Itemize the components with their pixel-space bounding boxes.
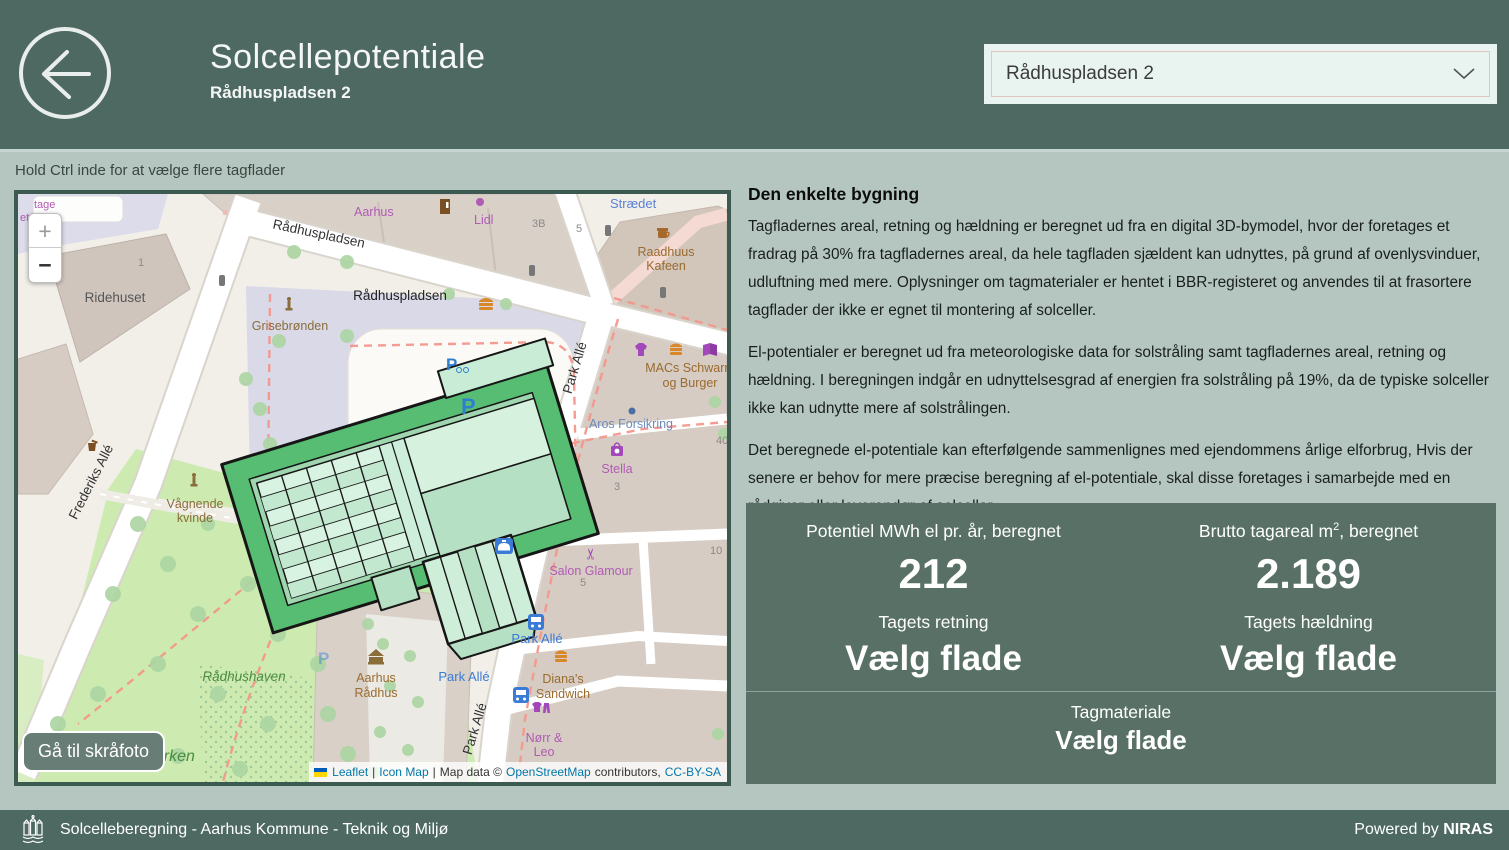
svg-text:Kafeen: Kafeen (646, 259, 686, 273)
svg-text:Salon Glamour: Salon Glamour (549, 564, 632, 578)
attribution-sep: | (372, 765, 375, 779)
stat-slope-label: Tagets hældning (1121, 610, 1496, 633)
powered-by: Powered by NIRAS (1354, 821, 1493, 839)
header: Solcellepotentiale Rådhuspladsen 2 Rådhu… (0, 0, 1509, 152)
icon-map-link[interactable]: Icon Map (379, 765, 428, 779)
attribution-sep: | (433, 765, 436, 779)
zoom-out-button[interactable]: − (29, 248, 61, 282)
leaflet-link[interactable]: Leaflet (332, 765, 368, 779)
svg-text:Rådhus: Rådhus (354, 686, 397, 700)
svg-text:Park Allé: Park Allé (438, 669, 489, 684)
burger-icon (479, 298, 493, 310)
map-canvas[interactable]: ✂ (18, 194, 727, 782)
svg-text:Nørr &: Nørr & (526, 731, 563, 745)
info-paragraph-2: El-potentialer er beregnet ud fra meteor… (748, 339, 1496, 423)
bus-icon (528, 614, 544, 630)
svg-text:5: 5 (580, 577, 586, 589)
skrafoto-button[interactable]: Gå til skråfoto (22, 731, 165, 772)
svg-text:Aarhus: Aarhus (354, 205, 394, 219)
svg-text:10: 10 (710, 545, 722, 557)
footer-app-title: Solcelleberegning - Aarhus Kommune - Tek… (60, 821, 448, 839)
svg-text:5: 5 (576, 223, 582, 235)
chevron-down-icon (1453, 68, 1475, 80)
info-heading: Den enkelte bygning (748, 184, 1496, 205)
svg-text:Strædet: Strædet (610, 196, 657, 211)
burger-icon (555, 651, 567, 663)
map[interactable]: ✂ (14, 190, 731, 786)
svg-text:Rådhuspladsen: Rådhuspladsen (353, 288, 447, 303)
map-attribution: Leaflet | Icon Map | Map data © OpenStre… (309, 762, 727, 782)
stat-direction-label: Tagets retning (746, 610, 1121, 633)
address-dropdown-value: Rådhuspladsen 2 (1006, 63, 1154, 85)
map-zoom-control: + − (28, 213, 62, 283)
info-paragraph-1: Tagfladernes areal, retning og hældning … (748, 213, 1496, 325)
svg-text:3B: 3B (532, 218, 545, 230)
svg-text:Grisebrønden: Grisebrønden (252, 319, 328, 333)
page-subtitle: Rådhuspladsen 2 (210, 83, 486, 103)
svg-text:Aarhus: Aarhus (356, 671, 396, 685)
svg-text:Raadhuus: Raadhuus (638, 245, 695, 259)
stat-potential-label: Potentiel MWh el pr. år, beregnet (746, 519, 1121, 542)
bus-icon (513, 687, 529, 703)
svg-text:Rådhushaven: Rådhushaven (202, 669, 285, 684)
svg-text:tage: tage (34, 199, 55, 211)
stat-material-label: Tagmateriale (746, 700, 1496, 723)
map-hint: Hold Ctrl inde for at vælge flere tagfla… (15, 162, 285, 179)
svg-text:Lidl: Lidl (474, 213, 493, 227)
svg-text:Diana's: Diana's (542, 672, 583, 686)
svg-text:Aros Forsikring: Aros Forsikring (589, 417, 673, 431)
svg-text:Sandwich: Sandwich (536, 687, 590, 701)
poi-icon (476, 198, 484, 206)
stat-direction-value: Vælg flade (746, 633, 1121, 689)
stat-area: Brutto tagareal m2, beregnet 2.189 (1121, 519, 1496, 610)
svg-text:kvinde: kvinde (177, 511, 213, 525)
svg-text:Leo: Leo (534, 745, 555, 759)
address-dropdown-inner: Rådhuspladsen 2 (991, 51, 1490, 97)
arrow-left-circle-icon (17, 25, 114, 122)
license-link[interactable]: CC-BY-SA (665, 765, 721, 779)
contributors-text: contributors, (595, 765, 661, 779)
footer: Solcelleberegning - Aarhus Kommune - Tek… (0, 810, 1509, 850)
vending-machine-icon (440, 199, 450, 214)
svg-text:og Burger: og Burger (663, 376, 718, 390)
svg-text:P: P (461, 394, 476, 419)
back-button[interactable] (17, 25, 114, 122)
svg-text:Vågnende: Vågnende (166, 497, 223, 511)
stat-area-label: Brutto tagareal m2, beregnet (1121, 519, 1496, 542)
poi-dot-icon (629, 408, 636, 415)
solar-potential-app: Solcellepotentiale Rådhuspladsen 2 Rådhu… (0, 0, 1509, 850)
scissors-icon: ✂ (583, 548, 600, 561)
stat-area-value: 2.189 (1121, 542, 1496, 610)
svg-text:Ridehuset: Ridehuset (85, 290, 146, 305)
stat-potential: Potentiel MWh el pr. år, beregnet 212 (746, 519, 1121, 610)
powered-by-text: Powered by (1354, 821, 1443, 838)
svg-text:Park Allé: Park Allé (511, 631, 562, 646)
svg-text:Stella: Stella (601, 462, 632, 476)
stat-material-value: Vælg flade (746, 723, 1496, 756)
map-data-text: Map data © (440, 765, 502, 779)
taxi-icon (495, 538, 513, 554)
stat-potential-value: 212 (746, 542, 1121, 610)
stats-panel: Potentiel MWh el pr. år, beregnet 212 Br… (746, 503, 1496, 784)
stat-slope-value: Vælg flade (1121, 633, 1496, 689)
ukraine-flag-icon (314, 768, 327, 777)
zoom-in-button[interactable]: + (29, 214, 61, 248)
stat-direction: Tagets retning Vælg flade (746, 610, 1121, 689)
stats-grid: Potentiel MWh el pr. år, beregnet 212 Br… (746, 503, 1496, 689)
svg-text:3: 3 (614, 481, 620, 493)
niras-brand: NIRAS (1443, 821, 1493, 838)
svg-text:MACs Schwarm: MACs Schwarm (645, 361, 727, 375)
title-block: Solcellepotentiale Rådhuspladsen 2 (210, 38, 486, 103)
svg-text:P: P (318, 649, 329, 668)
burger-icon (670, 344, 682, 356)
aarhus-kommune-logo (20, 815, 46, 845)
stat-material: Tagmateriale Vælg flade (746, 692, 1496, 756)
svg-text:1: 1 (138, 257, 144, 269)
svg-text:40: 40 (716, 435, 727, 447)
osm-link[interactable]: OpenStreetMap (506, 765, 591, 779)
page-title: Solcellepotentiale (210, 38, 486, 77)
stat-slope: Tagets hældning Vælg flade (1121, 610, 1496, 689)
address-dropdown[interactable]: Rådhuspladsen 2 (984, 44, 1497, 104)
svg-text:P: P (446, 355, 457, 374)
